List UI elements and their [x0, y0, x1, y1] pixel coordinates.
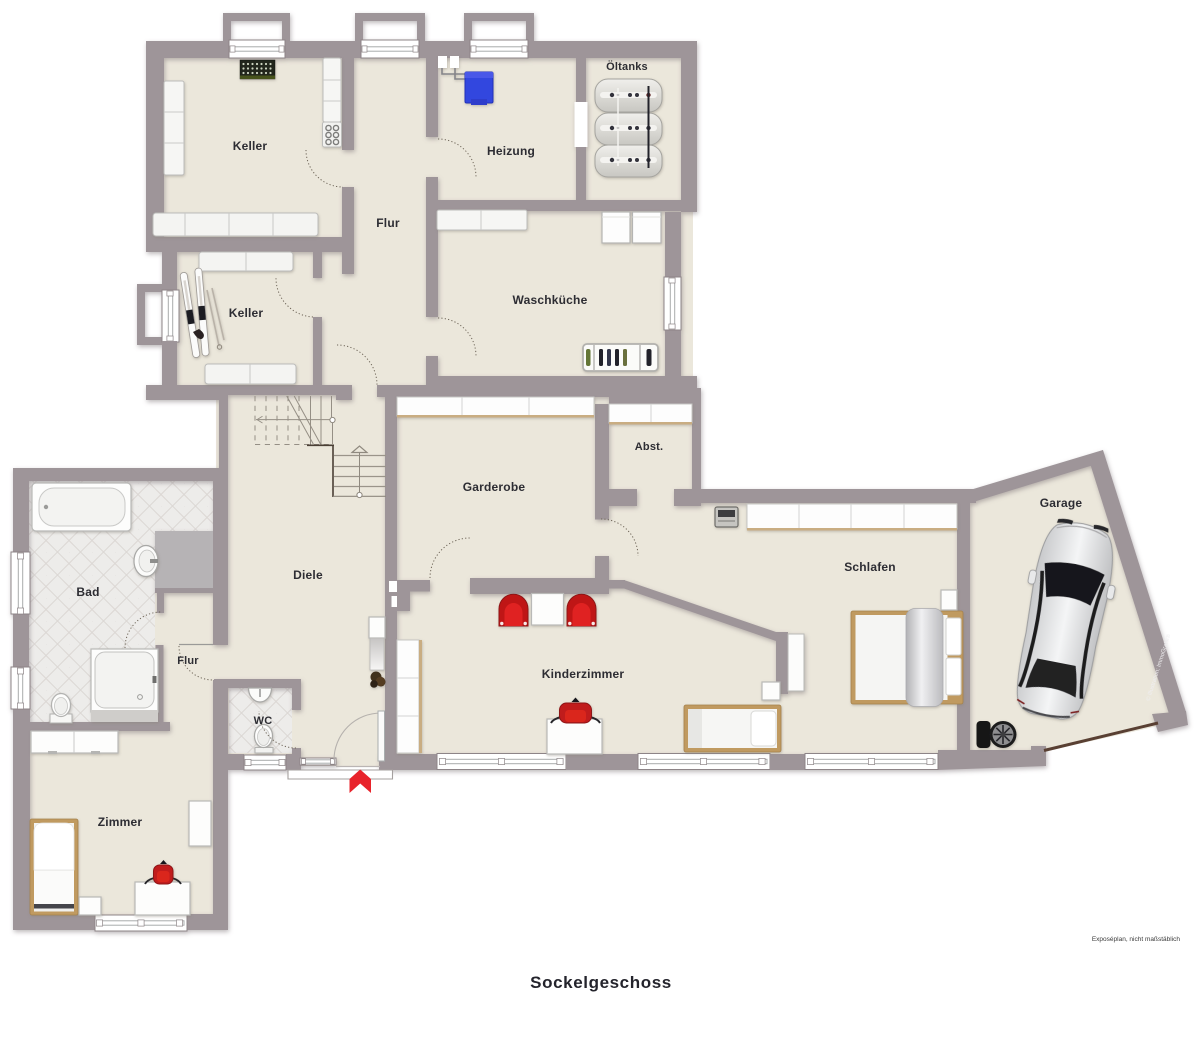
- svg-text:Kinderzimmer: Kinderzimmer: [542, 667, 625, 681]
- svg-text:Diele: Diele: [293, 568, 323, 582]
- svg-text:Heizung: Heizung: [487, 144, 535, 158]
- svg-text:Zimmer: Zimmer: [98, 815, 143, 829]
- svg-text:Abst.: Abst.: [635, 441, 664, 453]
- svg-text:Keller: Keller: [229, 306, 264, 320]
- svg-text:Flur: Flur: [376, 216, 400, 230]
- svg-text:Exposéplan, nicht maßstäblich: Exposéplan, nicht maßstäblich: [1092, 936, 1181, 943]
- svg-text:Öltanks: Öltanks: [606, 60, 648, 73]
- svg-text:Garage: Garage: [1040, 496, 1083, 510]
- svg-text:Schlafen: Schlafen: [844, 560, 896, 574]
- svg-text:Sockelgeschoss: Sockelgeschoss: [530, 973, 672, 992]
- svg-text:Flur: Flur: [177, 655, 199, 667]
- svg-text:WC: WC: [254, 715, 273, 727]
- svg-text:Bad: Bad: [76, 585, 99, 599]
- svg-text:Waschküche: Waschküche: [513, 293, 588, 307]
- svg-text:Keller: Keller: [233, 139, 268, 153]
- svg-text:Garderobe: Garderobe: [463, 480, 526, 494]
